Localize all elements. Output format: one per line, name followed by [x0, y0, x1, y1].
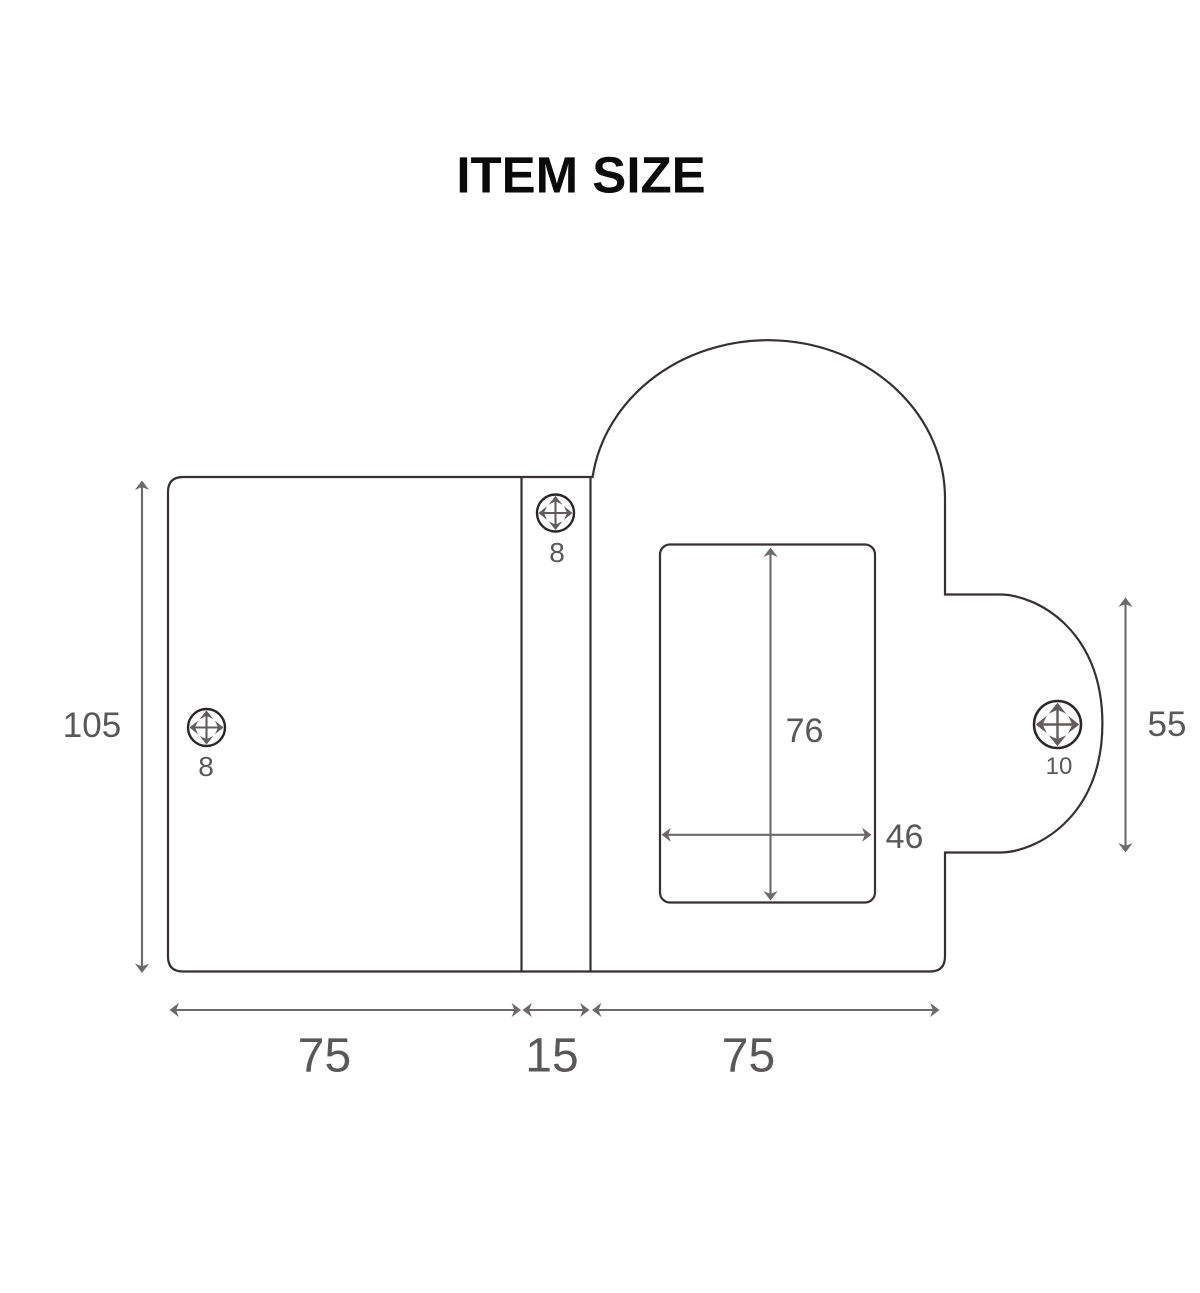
- svg-text:105: 105: [63, 706, 121, 745]
- svg-text:10: 10: [1046, 753, 1073, 780]
- svg-text:ITEM SIZE: ITEM SIZE: [456, 147, 705, 204]
- svg-text:76: 76: [786, 712, 824, 750]
- svg-text:46: 46: [886, 818, 924, 856]
- svg-text:75: 75: [722, 1030, 775, 1083]
- svg-text:75: 75: [298, 1030, 351, 1083]
- svg-text:15: 15: [525, 1030, 578, 1083]
- svg-text:8: 8: [549, 537, 565, 568]
- svg-text:8: 8: [198, 751, 214, 782]
- svg-text:55: 55: [1148, 705, 1187, 744]
